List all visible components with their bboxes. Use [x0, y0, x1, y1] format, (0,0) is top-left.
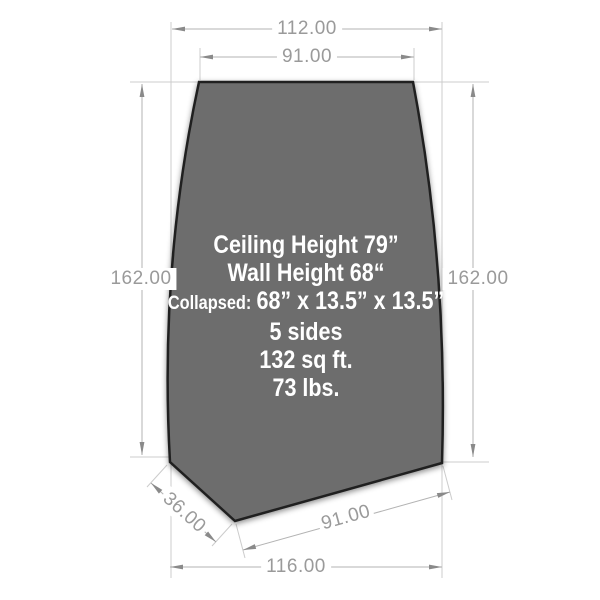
arrow-bottom-outer-right — [429, 565, 442, 570]
spec-sides: 5 sides — [168, 318, 444, 346]
spec-weight: 73 lbs. — [168, 374, 444, 402]
arrow-left-height-bottom — [140, 442, 145, 455]
spec-collapsed-value: 68” x 13.5” x 13.5” — [257, 287, 445, 315]
dim-label-top-inner: 91.00 — [277, 46, 337, 68]
spec-collapsed: Collapsed:68” x 13.5” x 13.5” — [168, 287, 444, 318]
spec-text-inner: Ceiling Height 79” Wall Height 68“ Colla… — [168, 231, 444, 402]
arrow-right-height-top — [471, 84, 476, 97]
dim-label-bottom-outer: 116.00 — [261, 556, 331, 578]
spec-collapsed-label: Collapsed: — [168, 293, 252, 314]
spec-wall-height: Wall Height 68“ — [168, 259, 444, 287]
extension-line-bottom-inner-right — [443, 466, 452, 500]
arrow-top-inner-left — [200, 55, 213, 60]
arrow-top-inner-right — [401, 55, 414, 60]
extension-line-angled-upper — [147, 465, 167, 487]
spec-ceiling-height: Ceiling Height 79” — [168, 231, 444, 259]
arrow-bottom-inner-left — [243, 544, 256, 550]
spec-text-block: Ceiling Height 79” Wall Height 68“ Colla… — [145, 231, 466, 402]
arrow-bottom-inner-right — [437, 492, 450, 498]
extension-line-bottom-inner-left — [236, 524, 245, 558]
dim-label-top-outer: 112.00 — [272, 18, 342, 40]
arrow-right-height-bottom — [471, 444, 476, 457]
spec-area: 132 sq ft. — [168, 346, 444, 374]
arrow-left-height-top — [140, 84, 145, 97]
diagram-canvas: 112.00 91.00 162.00 162.00 36.00 91.00 1… — [0, 0, 600, 600]
arrow-top-outer-right — [429, 27, 442, 32]
extension-line-angled-lower — [212, 524, 232, 546]
arrow-top-outer-left — [172, 27, 185, 32]
arrow-bottom-outer-left — [170, 565, 183, 570]
